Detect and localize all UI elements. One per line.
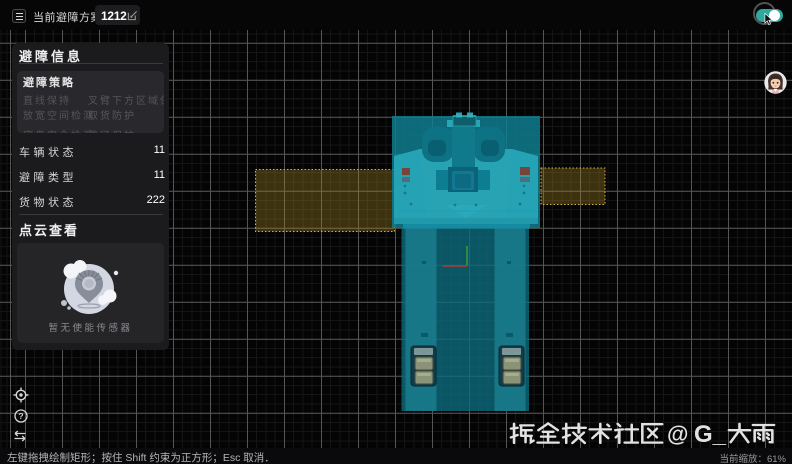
svg-text:?: ? [18,411,23,421]
svg-text:@: @ [667,422,688,447]
svg-text:G_: G_ [694,421,727,448]
